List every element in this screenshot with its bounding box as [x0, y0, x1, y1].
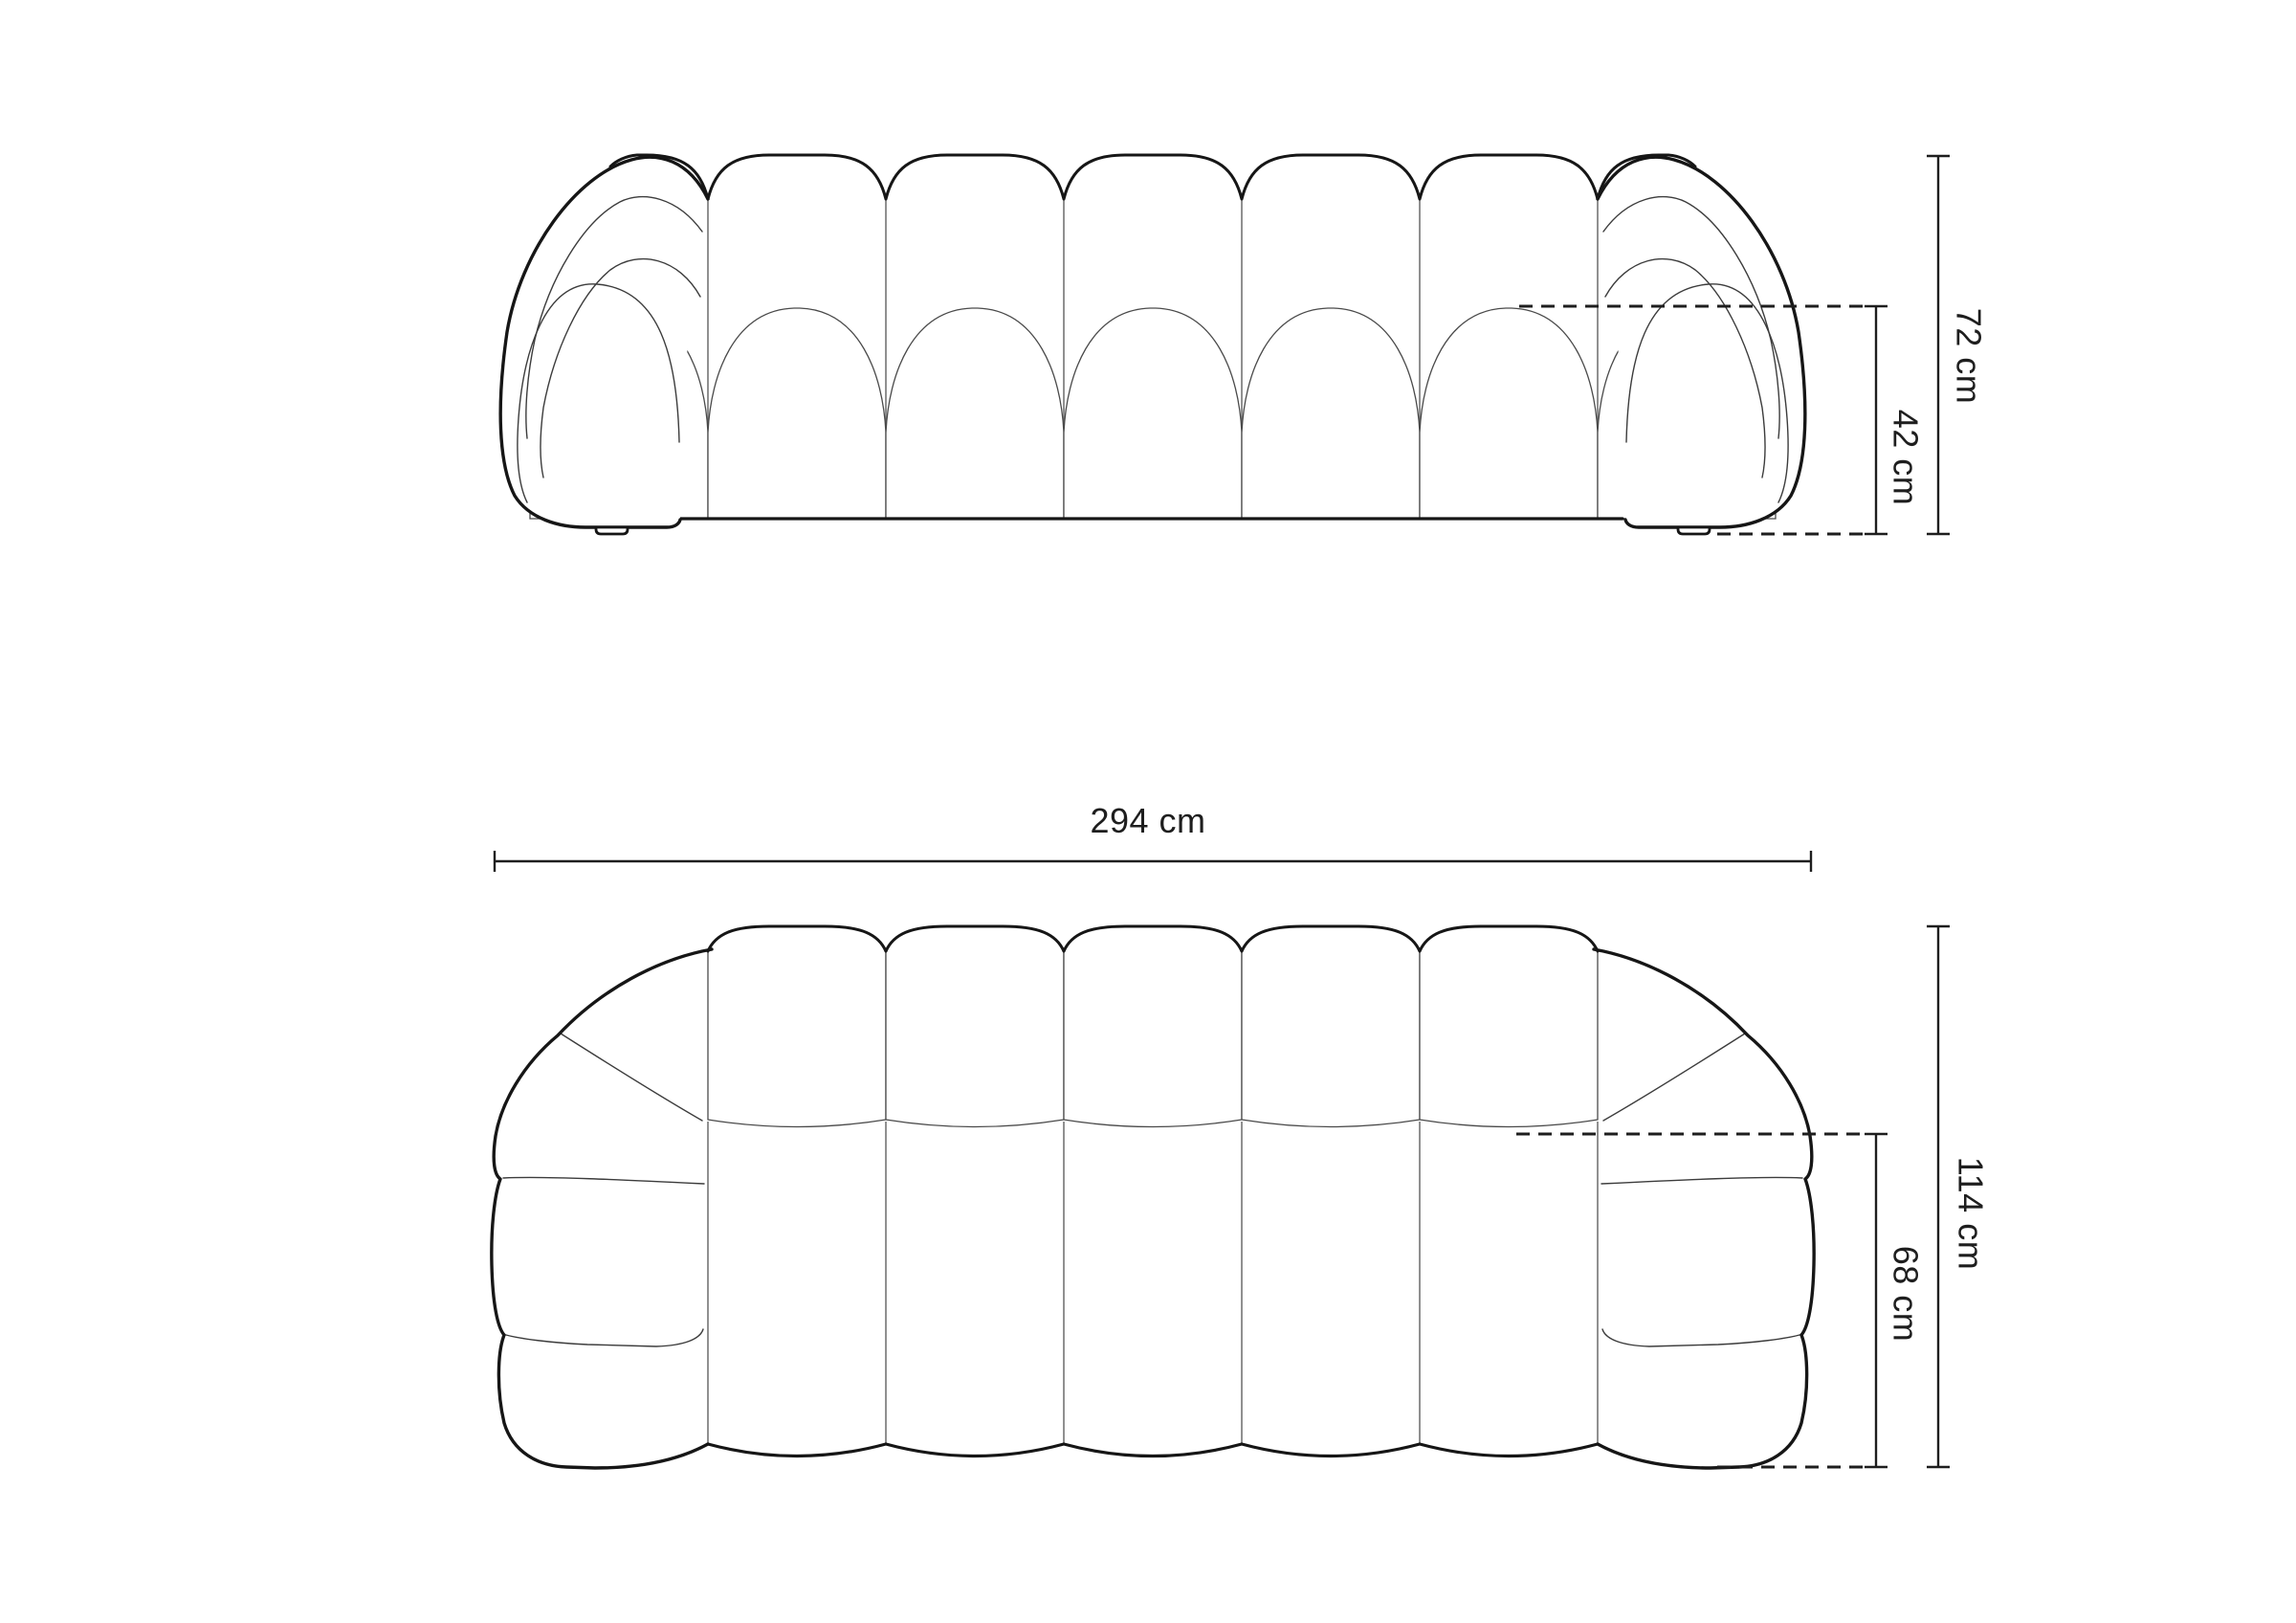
plan-total-width-dimension: 294 cm [495, 801, 1811, 872]
dimension-label-total-height: 72 cm [1950, 308, 1989, 405]
dimension-label-seat-depth: 68 cm [1887, 1246, 1926, 1343]
sofa-front-view: 42 cm 72 cm [500, 155, 1988, 534]
front-total-height-dimension: 72 cm [1927, 156, 1989, 534]
plan-seat-seams [708, 1122, 1598, 1443]
dimension-label-total-width: 294 cm [1090, 801, 1205, 840]
dimension-label-total-depth: 114 cm [1952, 1157, 1991, 1270]
plan-left-arm [492, 949, 712, 1468]
front-right-leg [1678, 527, 1710, 534]
front-backrest-top-outline [610, 155, 1695, 199]
front-right-arm [1598, 157, 1805, 534]
front-left-arm [500, 157, 708, 534]
plan-backrest-channels [708, 926, 1598, 1127]
front-seat-cushions [530, 308, 1776, 519]
dimension-diagram: 42 cm 72 cm 294 cm [0, 0, 2296, 1623]
sofa-plan-view: 294 cm [492, 801, 1991, 1468]
diagram-canvas: 42 cm 72 cm 294 cm [0, 0, 2296, 1623]
plan-right-arm [1594, 949, 1814, 1468]
plan-total-depth-dimension: 114 cm [1927, 926, 1991, 1467]
front-left-leg [596, 527, 628, 534]
plan-front-edge [708, 1444, 1598, 1456]
dimension-label-seat-height: 42 cm [1887, 410, 1926, 506]
